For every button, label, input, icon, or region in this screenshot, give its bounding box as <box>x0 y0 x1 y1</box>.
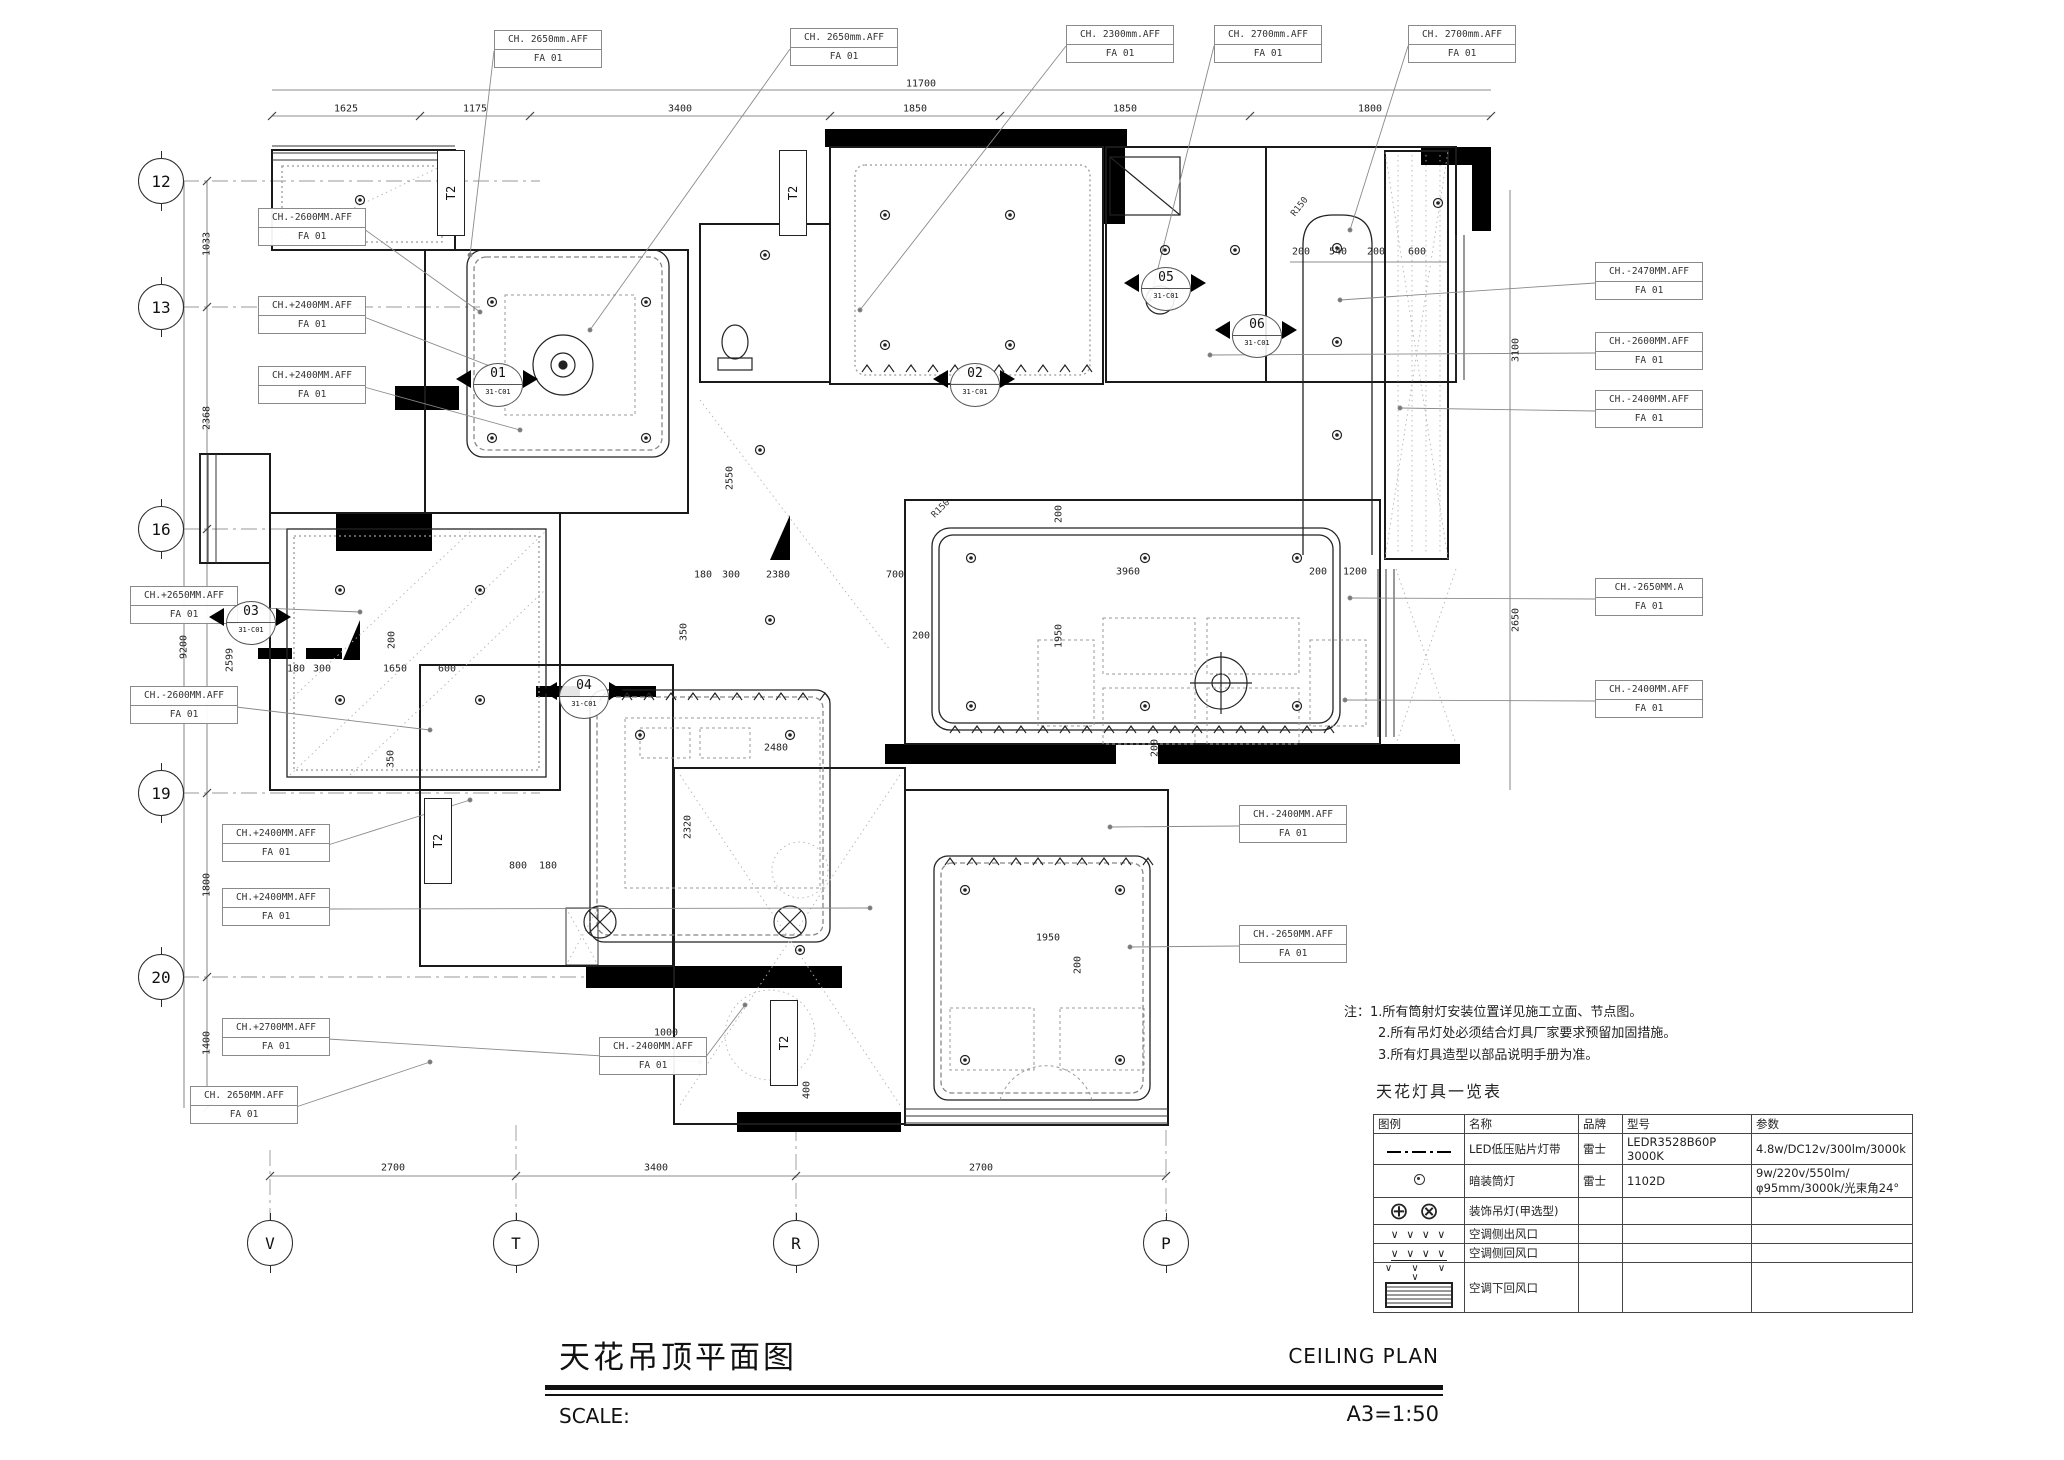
legend-brand <box>1579 1198 1623 1225</box>
finish-code: FA 01 <box>191 1106 297 1124</box>
finish-code: FA 01 <box>1409 45 1515 63</box>
ceiling-height-label: CH.+2400MM.AFFFA 01 <box>258 366 366 404</box>
legend-brand: 雷士 <box>1579 1134 1623 1165</box>
ch-value: CH.+2400MM.AFF <box>223 889 329 908</box>
shaft-label: T2 <box>431 834 445 848</box>
ceiling-height-label: CH.+2400MM.AFFFA 01 <box>222 888 330 926</box>
legend-row: 暗装筒灯 雷士 1102D 9w/220v/550lm/φ95mm/3000k/… <box>1374 1165 1913 1198</box>
legend-name: 装饰吊灯(甲选型) <box>1465 1198 1579 1225</box>
ceiling-height-label: CH.-2650MM.AFA 01 <box>1595 578 1703 616</box>
legend-name: 暗装筒灯 <box>1465 1165 1579 1198</box>
finish-code: FA 01 <box>259 228 365 246</box>
ceiling-height-label: CH.-2600MM.AFFFA 01 <box>130 686 238 724</box>
title-rule <box>545 1394 1443 1396</box>
grid-bubble-V: V <box>247 1220 293 1266</box>
grid-bubble-19: 19 <box>138 770 184 816</box>
section-sheet: 31-C01 <box>1233 336 1281 348</box>
dim-label: 11700 <box>906 79 936 90</box>
notes-prefix: 注： <box>1344 1005 1370 1020</box>
dim-label: 400 <box>802 1081 813 1099</box>
section-sheet: 31-C01 <box>560 697 608 709</box>
section-number: 01 <box>474 364 522 385</box>
section-marker-bubble: 0231-C01 <box>950 363 1000 407</box>
dimension-lines <box>184 90 1510 1180</box>
dim-label: 2380 <box>766 570 790 581</box>
legend-model <box>1623 1225 1752 1244</box>
dim-label: 200 <box>1150 739 1161 757</box>
dim-label: 200 <box>1054 505 1065 523</box>
shaft-box: T2 <box>770 1000 798 1086</box>
section-number: 04 <box>560 676 608 697</box>
dim-label: 2480 <box>764 743 788 754</box>
legend-brand <box>1579 1225 1623 1244</box>
ceiling-height-label: CH. 2300mm.AFFFA 01 <box>1066 25 1174 63</box>
dim-label: 200 <box>912 631 930 642</box>
legend-row: ∨ ∨ ∨ ∨ 空调下回风口 <box>1374 1263 1913 1313</box>
section-arrow-icon <box>523 370 538 388</box>
dim-label: 2368 <box>202 406 213 430</box>
legend-name: 空调下回风口 <box>1465 1263 1579 1313</box>
shaft-label: T2 <box>786 186 800 200</box>
finish-code: FA 01 <box>1067 45 1173 63</box>
legend-params: 9w/220v/550lm/φ95mm/3000k/光束角24° <box>1752 1165 1913 1198</box>
scale-value: A3=1:50 <box>1347 1402 1439 1426</box>
legend-row: ∨ ∨ ∨ ∨ 空调侧回风口 <box>1374 1244 1913 1263</box>
ch-value: CH.+2700MM.AFF <box>223 1019 329 1038</box>
dim-label: 300 <box>722 570 740 581</box>
legend-header-model: 型号 <box>1623 1115 1752 1134</box>
ceiling-height-label: CH. 2650MM.AFFFA 01 <box>190 1086 298 1124</box>
shaft-box: T2 <box>437 150 465 236</box>
section-number: 06 <box>1233 315 1281 336</box>
finish-code: FA 01 <box>223 1038 329 1056</box>
finish-code: FA 01 <box>259 316 365 334</box>
ceiling-height-label: CH. 2650mm.AFFFA 01 <box>790 28 898 66</box>
dim-label: 1800 <box>202 873 213 897</box>
dim-label: 800 <box>509 861 527 872</box>
led-strip-icon <box>1374 1134 1465 1165</box>
ch-value: CH.+2400MM.AFF <box>259 297 365 316</box>
grid-bubble-20: 20 <box>138 954 184 1000</box>
dim-label: 350 <box>679 623 690 641</box>
section-marker-bubble: 0631-C01 <box>1232 314 1282 358</box>
note-line-1: 1.所有筒射灯安装位置详见施工立面、节点图。 <box>1370 1005 1642 1020</box>
ceiling-height-label: CH.-2470MM.AFFFA 01 <box>1595 262 1703 300</box>
dim-label: 200 <box>387 631 398 649</box>
dim-label: 2550 <box>725 466 736 490</box>
section-arrow-icon <box>1282 321 1297 339</box>
dim-label: 2320 <box>683 815 694 839</box>
ceiling-height-label: CH.+2400MM.AFFFA 01 <box>258 296 366 334</box>
section-arrow-icon <box>456 370 471 388</box>
dim-label: 1850 <box>1113 104 1137 115</box>
legend-header-row: 图例 名称 品牌 型号 参数 <box>1374 1115 1913 1134</box>
finish-code: FA 01 <box>131 706 237 724</box>
legend-model <box>1623 1198 1752 1225</box>
legend-header-brand: 品牌 <box>1579 1115 1623 1134</box>
finish-code: FA 01 <box>1596 410 1702 428</box>
note-line-2: 2.所有吊灯处必须结合灯具厂家要求预留加固措施。 <box>1344 1023 1676 1044</box>
grid-bubble-12: 12 <box>138 158 184 204</box>
section-marker-bubble: 0131-C01 <box>473 363 523 407</box>
shaft-label: T2 <box>777 1036 791 1050</box>
ac-side-return-icon: ∨ ∨ ∨ ∨ <box>1374 1244 1465 1263</box>
dim-label: 1650 <box>383 664 407 675</box>
finish-code: FA 01 <box>791 48 897 66</box>
ceiling-plan-sheet: 1213161920VTRPCH. 2650mm.AFFFA 01CH. 265… <box>0 0 2064 1460</box>
ch-value: CH.-2400MM.AFF <box>1240 806 1346 825</box>
legend-name: 空调侧回风口 <box>1465 1244 1579 1263</box>
dim-label: 1800 <box>1358 104 1382 115</box>
general-notes: 注：1.所有筒射灯安装位置详见施工立面、节点图。 2.所有吊灯处必须结合灯具厂家… <box>1344 1002 1814 1066</box>
legend-name: LED低压贴片灯带 <box>1465 1134 1579 1165</box>
ceiling-height-label: CH.-2400MM.AFFFA 01 <box>599 1037 707 1075</box>
ch-value: CH.-2400MM.AFF <box>1596 681 1702 700</box>
finish-code: FA 01 <box>1596 700 1702 718</box>
ch-value: CH. 2650mm.AFF <box>495 31 601 50</box>
legend-params <box>1752 1198 1913 1225</box>
legend-model: 1102D <box>1623 1165 1752 1198</box>
dim-label: 600 <box>1408 247 1426 258</box>
ceiling-height-label: CH.-2600MM.AFFFA 01 <box>258 208 366 246</box>
legend-header-symbol: 图例 <box>1374 1115 1465 1134</box>
finish-code: FA 01 <box>259 386 365 404</box>
dim-label: 300 <box>313 664 331 675</box>
ch-value: CH.+2400MM.AFF <box>259 367 365 386</box>
dim-label: 1033 <box>202 232 213 256</box>
dim-label: 540 <box>1329 247 1347 258</box>
ch-value: CH.-2600MM.AFF <box>1596 333 1702 352</box>
title-rule <box>545 1385 1443 1390</box>
dim-label: 200 <box>1309 567 1327 578</box>
ac-bottom-return-icon: ∨ ∨ ∨ ∨ <box>1374 1263 1465 1313</box>
section-number: 05 <box>1142 268 1190 289</box>
section-arrow-icon <box>209 608 224 626</box>
section-sheet: 31-C01 <box>227 623 275 635</box>
shaft-box: T2 <box>424 798 452 884</box>
finish-code: FA 01 <box>1240 825 1346 843</box>
ch-value: CH.-2400MM.AFF <box>1596 391 1702 410</box>
dim-label: 350 <box>386 750 397 768</box>
walls <box>258 129 1491 1132</box>
finish-code: FA 01 <box>1596 352 1702 370</box>
finish-code: FA 01 <box>223 908 329 926</box>
ceiling-height-label: CH. 2650mm.AFFFA 01 <box>494 30 602 68</box>
dim-label: 1400 <box>202 1031 213 1055</box>
grid-bubble-16: 16 <box>138 506 184 552</box>
grid-bubble-R: R <box>773 1220 819 1266</box>
section-number: 03 <box>227 602 275 623</box>
legend-name: 空调侧出风口 <box>1465 1225 1579 1244</box>
ceiling-height-label: CH.-2400MM.AFFFA 01 <box>1595 390 1703 428</box>
ch-value: CH.-2600MM.AFF <box>131 687 237 706</box>
legend-model <box>1623 1263 1752 1313</box>
scale-label: SCALE: <box>559 1404 630 1428</box>
shaft-box: T2 <box>779 150 807 236</box>
ch-value: CH. 2700mm.AFF <box>1215 26 1321 45</box>
legend-brand <box>1579 1263 1623 1313</box>
dim-label: 180 <box>287 664 305 675</box>
section-marker-bubble: 0531-C01 <box>1141 267 1191 311</box>
dim-label: 3100 <box>1511 338 1522 362</box>
section-arrow-icon <box>542 682 557 700</box>
legend-params <box>1752 1225 1913 1244</box>
dim-label: 3400 <box>668 104 692 115</box>
dim-label: 200 <box>1367 247 1385 258</box>
section-number: 02 <box>951 364 999 385</box>
dim-label: 180 <box>539 861 557 872</box>
ch-value: CH.-2400MM.AFF <box>600 1038 706 1057</box>
finish-code: FA 01 <box>1240 945 1346 963</box>
grid-bubble-T: T <box>493 1220 539 1266</box>
legend-header-params: 参数 <box>1752 1115 1913 1134</box>
legend-table: 图例 名称 品牌 型号 参数 LED低压贴片灯带 雷士 LEDR3528B60P… <box>1373 1114 1913 1313</box>
ceiling-panels <box>282 165 1372 1100</box>
drawing-title-en: CEILING PLAN <box>1288 1344 1439 1368</box>
ceiling-height-label: CH.-2400MM.AFFFA 01 <box>1595 680 1703 718</box>
ch-value: CH. 2650mm.AFF <box>791 29 897 48</box>
dim-label: 700 <box>886 570 904 581</box>
dim-label: 200 <box>1073 956 1084 974</box>
section-sheet: 31-C01 <box>951 385 999 397</box>
legend-params <box>1752 1244 1913 1263</box>
dim-label: 2599 <box>225 648 236 672</box>
section-arrow-icon <box>1124 274 1139 292</box>
ceiling-height-label: CH.+2700MM.AFFFA 01 <box>222 1018 330 1056</box>
legend-header-name: 名称 <box>1465 1115 1579 1134</box>
finish-code: FA 01 <box>495 50 601 68</box>
grid-bubble-P: P <box>1143 1220 1189 1266</box>
ch-value: CH.-2650MM.AFF <box>1240 926 1346 945</box>
finish-code: FA 01 <box>1215 45 1321 63</box>
dim-label: 2650 <box>1511 608 1522 632</box>
section-arrow-icon <box>1191 274 1206 292</box>
section-arrow-icon <box>933 370 948 388</box>
legend-title: 天花灯具一览表 <box>1376 1078 1502 1102</box>
ceiling-height-label: CH. 2700mm.AFFFA 01 <box>1214 25 1322 63</box>
ac-side-supply-icon: ∨ ∨ ∨ ∨ <box>1374 1225 1465 1244</box>
legend-brand: 雷士 <box>1579 1165 1623 1198</box>
dim-label: 200 <box>1292 247 1310 258</box>
downlight-icon <box>1374 1165 1465 1198</box>
ceiling-height-label: CH.-2400MM.AFFFA 01 <box>1239 805 1347 843</box>
drawing-title-cn: 天花吊顶平面图 <box>559 1332 797 1377</box>
dim-label: 600 <box>438 664 456 675</box>
ch-value: CH.-2650MM.A <box>1596 579 1702 598</box>
dim-label: 2700 <box>381 1163 405 1174</box>
shaft-label: T2 <box>444 186 458 200</box>
ceiling-height-label: CH. 2700mm.AFFFA 01 <box>1408 25 1516 63</box>
dim-label: 9200 <box>179 635 190 659</box>
legend-params: 4.8w/DC12v/300lm/3000k <box>1752 1134 1913 1165</box>
ch-value: CH.-2470MM.AFF <box>1596 263 1702 282</box>
section-sheet: 31-C01 <box>1142 289 1190 301</box>
ch-value: CH. 2650MM.AFF <box>191 1087 297 1106</box>
dim-label: 1625 <box>334 104 358 115</box>
section-arrow-icon <box>1215 321 1230 339</box>
dim-label: 3400 <box>644 1163 668 1174</box>
pendant-icon: ⊕⊗ <box>1374 1198 1465 1225</box>
section-sheet: 31-C01 <box>474 385 522 397</box>
ch-value: CH.-2600MM.AFF <box>259 209 365 228</box>
section-arrow-icon <box>276 608 291 626</box>
dim-label: 1950 <box>1036 933 1060 944</box>
ceiling-height-label: CH.+2400MM.AFFFA 01 <box>222 824 330 862</box>
section-marker-bubble: 0331-C01 <box>226 601 276 645</box>
legend-brand <box>1579 1244 1623 1263</box>
ch-value: CH. 2700mm.AFF <box>1409 26 1515 45</box>
section-arrow-icon <box>609 682 624 700</box>
dim-label: 1950 <box>1054 624 1065 648</box>
finish-code: FA 01 <box>1596 598 1702 616</box>
section-arrow-icon <box>1000 370 1015 388</box>
dim-label: 180 <box>694 570 712 581</box>
dim-label: 2700 <box>969 1163 993 1174</box>
grid-bubble-13: 13 <box>138 284 184 330</box>
dim-label: 3960 <box>1116 567 1140 578</box>
legend-model: LEDR3528B60P 3000K <box>1623 1134 1752 1165</box>
dim-label: 1200 <box>1343 567 1367 578</box>
finish-code: FA 01 <box>223 844 329 862</box>
finish-code: FA 01 <box>600 1057 706 1075</box>
legend-model <box>1623 1244 1752 1263</box>
section-marker-bubble: 0431-C01 <box>559 675 609 719</box>
finish-code: FA 01 <box>1596 282 1702 300</box>
note-line-3: 3.所有灯具造型以部品说明手册为准。 <box>1344 1045 1598 1066</box>
legend-params <box>1752 1263 1913 1313</box>
legend-row: ∨ ∨ ∨ ∨ 空调侧出风口 <box>1374 1225 1913 1244</box>
ch-value: CH. 2300mm.AFF <box>1067 26 1173 45</box>
ceiling-height-label: CH.-2600MM.AFFFA 01 <box>1595 332 1703 370</box>
legend-row: ⊕⊗ 装饰吊灯(甲选型) <box>1374 1198 1913 1225</box>
ceiling-height-label: CH.-2650MM.AFFFA 01 <box>1239 925 1347 963</box>
ch-value: CH.+2650MM.AFF <box>131 587 237 606</box>
legend-row: LED低压贴片灯带 雷士 LEDR3528B60P 3000K 4.8w/DC1… <box>1374 1134 1913 1165</box>
ch-value: CH.+2400MM.AFF <box>223 825 329 844</box>
dim-label: 1175 <box>463 104 487 115</box>
dim-label: 1850 <box>903 104 927 115</box>
